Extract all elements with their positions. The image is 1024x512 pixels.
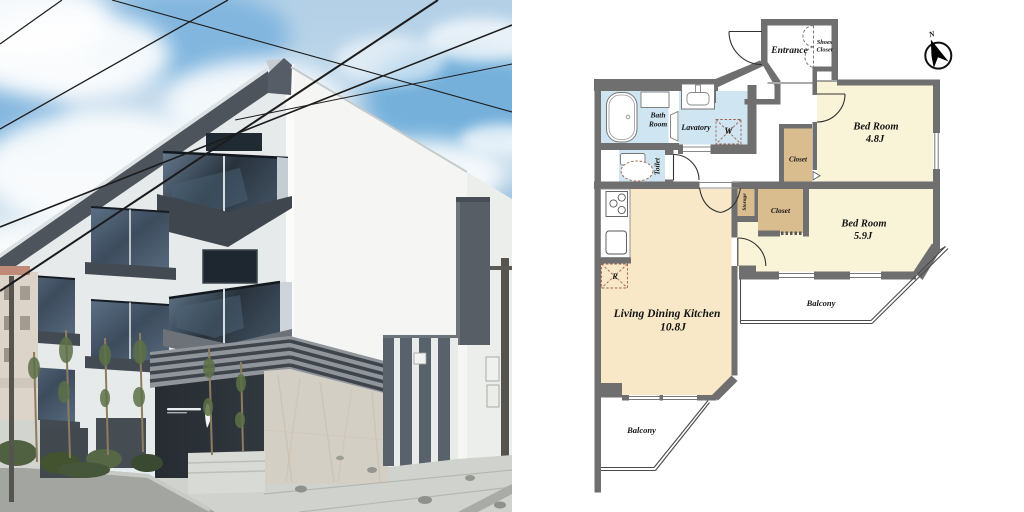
svg-text:Lavatory: Lavatory (680, 123, 711, 132)
svg-text:Closet: Closet (771, 206, 791, 215)
svg-text:10.8J: 10.8J (660, 322, 687, 334)
svg-text:Storage: Storage (742, 193, 748, 211)
svg-text:R: R (611, 272, 618, 281)
svg-text:Balcony: Balcony (806, 298, 836, 308)
svg-text:Toilet: Toilet (653, 157, 662, 175)
svg-text:Bath: Bath (649, 111, 665, 120)
svg-text:5.9J: 5.9J (854, 231, 873, 242)
svg-text:Entrance: Entrance (770, 46, 808, 56)
svg-text:Shoes: Shoes (817, 39, 833, 46)
svg-text:Bed Room: Bed Room (852, 122, 898, 133)
svg-text:Closet: Closet (816, 47, 832, 54)
svg-text:Bed Room: Bed Room (840, 219, 886, 230)
svg-text:4.8J: 4.8J (865, 134, 885, 145)
svg-text:Room: Room (648, 120, 668, 129)
svg-text:W: W (724, 126, 733, 136)
svg-text:Living Dining Kitchen: Living Dining Kitchen (613, 308, 721, 320)
svg-text:Closet: Closet (789, 156, 808, 164)
svg-text:Balcony: Balcony (626, 425, 656, 435)
